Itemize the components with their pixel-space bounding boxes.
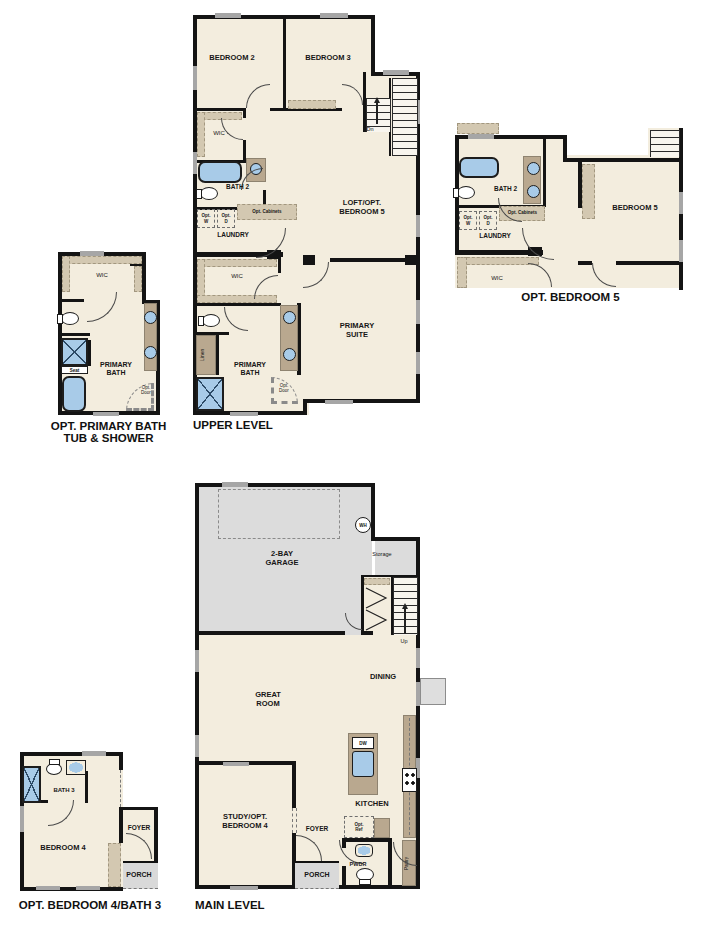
window: [36, 886, 60, 890]
porch-edge: [123, 888, 158, 889]
shower: [22, 766, 41, 803]
wall: [119, 752, 123, 770]
closet-shelf: [108, 843, 121, 887]
room-label-foyer: FOYER: [119, 824, 159, 832]
room-label-bath3: BATH 3: [44, 787, 84, 794]
bath3-sink: [66, 760, 86, 775]
opt-bedroom4-plan: BATH 3 BEDROOM 4 FOYER PORCH OPT. BEDROO…: [0, 0, 712, 925]
room-label-porch: PORCH: [119, 871, 159, 879]
wall: [123, 807, 158, 810]
wall: [154, 807, 158, 863]
room-label-bedroom4: BEDROOM 4: [23, 843, 103, 852]
caption-opt-bedroom4: OPT. BEDROOM 4/BATH 3: [10, 899, 170, 911]
floor-plan-sheet: Opt. W Opt. D BEDROOM 2 BEDROOM 3 WIC BA…: [0, 0, 712, 925]
toilet: [46, 763, 62, 775]
wall: [20, 752, 123, 756]
window: [76, 886, 100, 890]
wall: [85, 771, 88, 803]
window: [82, 751, 106, 756]
cut-line: [120, 770, 121, 807]
window: [20, 806, 24, 832]
